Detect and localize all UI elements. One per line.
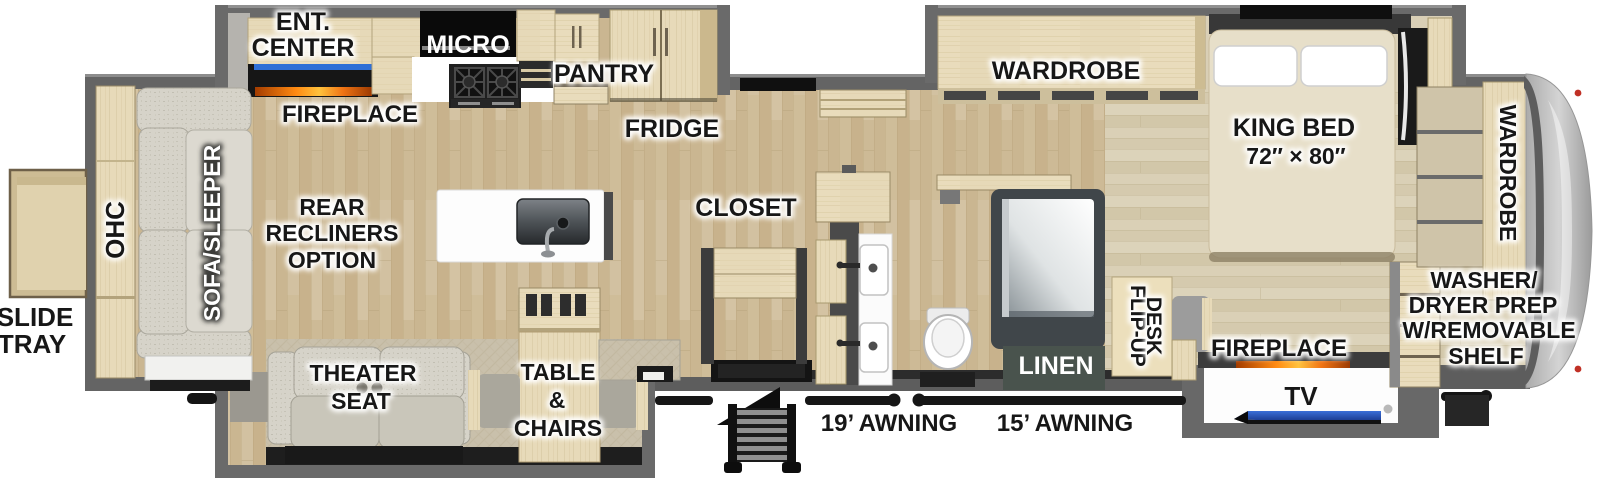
svg-text:LINEN: LINEN — [1019, 352, 1094, 380]
svg-text:&: & — [549, 387, 566, 413]
svg-text:SEAT: SEAT — [331, 388, 391, 414]
svg-text:WARDROBE: WARDROBE — [1495, 105, 1521, 242]
svg-text:WARDROBE: WARDROBE — [992, 57, 1141, 85]
svg-text:PANTRY: PANTRY — [554, 60, 654, 88]
svg-text:KING BED: KING BED — [1233, 114, 1355, 142]
svg-text:TRAY: TRAY — [0, 329, 66, 359]
svg-text:FIREPLACE: FIREPLACE — [282, 101, 418, 128]
svg-text:CLOSET: CLOSET — [695, 194, 796, 222]
svg-text:OHC: OHC — [100, 201, 130, 259]
svg-text:15’ AWNING: 15’ AWNING — [997, 410, 1133, 437]
svg-text:TV: TV — [1284, 381, 1318, 411]
svg-text:MICRO: MICRO — [426, 31, 509, 59]
svg-text:THEATER: THEATER — [310, 360, 417, 386]
svg-text:TABLE: TABLE — [521, 359, 596, 385]
svg-text:W/REMOVABLE: W/REMOVABLE — [1402, 317, 1575, 343]
svg-text:19’ AWNING: 19’ AWNING — [821, 410, 957, 437]
svg-text:SOFA/SLEEPER: SOFA/SLEEPER — [199, 144, 225, 321]
svg-text:SHELF: SHELF — [1448, 343, 1523, 369]
svg-text:FIREPLACE: FIREPLACE — [1211, 335, 1347, 362]
svg-text:REAR: REAR — [299, 194, 365, 220]
svg-text:OPTION: OPTION — [288, 247, 376, 273]
svg-text:RECLINERS: RECLINERS — [266, 220, 399, 246]
svg-text:DESK: DESK — [1142, 297, 1165, 355]
svg-text:DRYER PREP: DRYER PREP — [1409, 292, 1558, 318]
svg-text:FRIDGE: FRIDGE — [625, 115, 719, 143]
svg-text:CENTER: CENTER — [252, 34, 355, 62]
svg-text:CHAIRS: CHAIRS — [514, 415, 602, 441]
svg-text:WASHER/: WASHER/ — [1430, 267, 1538, 293]
svg-text:SLIDE: SLIDE — [0, 302, 73, 332]
svg-text:72″ × 80″: 72″ × 80″ — [1246, 143, 1345, 169]
svg-text:ENT.: ENT. — [276, 8, 330, 36]
